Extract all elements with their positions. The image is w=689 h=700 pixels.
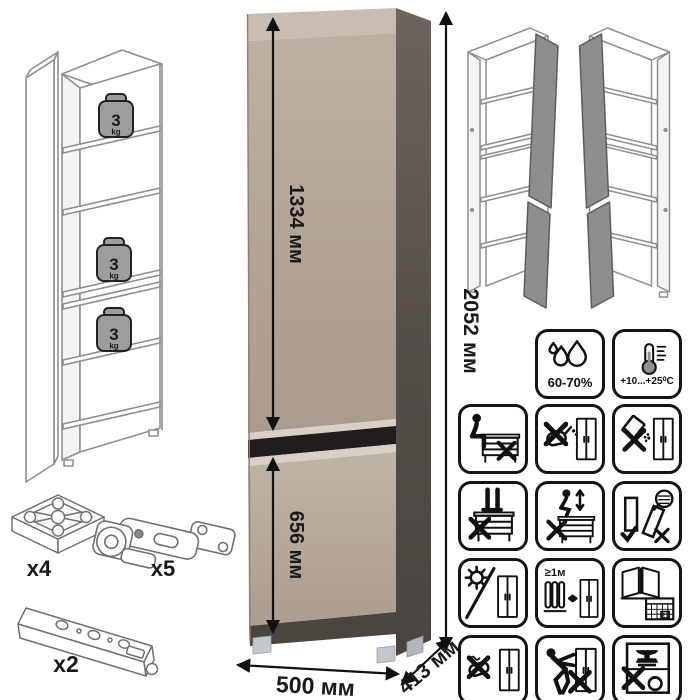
no-sitting-tile bbox=[458, 404, 528, 474]
hinge-qty-label: x5 bbox=[151, 556, 175, 581]
hinge-dot bbox=[471, 129, 474, 132]
svg-text:kg: kg bbox=[109, 272, 118, 281]
foot-mark bbox=[64, 460, 73, 466]
cabinet-upper-door bbox=[248, 33, 396, 433]
no-liquids-tile bbox=[535, 404, 605, 474]
wireframe-door-cabinet-right bbox=[580, 28, 670, 308]
weight-badge: 3 kg bbox=[99, 94, 133, 137]
no-standing-tile bbox=[458, 481, 528, 551]
cabinet-foot bbox=[377, 646, 395, 663]
no-heavy-objects-icon bbox=[618, 641, 676, 699]
keep-distance-from-heater-tile: ≥1м bbox=[535, 558, 605, 628]
ventilate-room-icon: 21 bbox=[618, 564, 676, 622]
temperature-label: +10...+25⁰C bbox=[620, 377, 674, 387]
cabinet-side-panel bbox=[396, 8, 431, 656]
no-dragging-icon bbox=[541, 641, 599, 699]
svg-text:kg: kg bbox=[111, 128, 120, 137]
weight-badge: 3 kg bbox=[97, 238, 131, 281]
no-standing-icon bbox=[464, 487, 522, 545]
no-liquids-icon bbox=[541, 410, 599, 468]
humidity-tile: 60-70% bbox=[535, 329, 605, 399]
dim-label-total: 2052 мм bbox=[459, 288, 483, 374]
humidity-drops-icon bbox=[542, 339, 598, 375]
plinth-peg bbox=[147, 664, 158, 675]
no-abrasive-powder-icon bbox=[618, 410, 676, 468]
no-heavy-objects-tile bbox=[612, 635, 682, 700]
dim-label-width: 500 мм bbox=[275, 671, 355, 700]
cabinet-3d-render bbox=[247, 8, 431, 663]
dim-label-upper: 1334 мм bbox=[285, 184, 307, 264]
thermometer-icon bbox=[619, 342, 675, 376]
foot-mark bbox=[149, 430, 158, 436]
dim-label-lower: 656 мм bbox=[285, 511, 307, 580]
carcass-left-side bbox=[62, 74, 80, 460]
cabinet-foot bbox=[253, 636, 271, 654]
door-lower-panel bbox=[524, 202, 550, 308]
carcass-left-side bbox=[468, 52, 480, 292]
cabinet-lower-door bbox=[248, 452, 396, 626]
store-panels-upright-icon bbox=[618, 487, 676, 545]
no-direct-sunlight-tile bbox=[458, 558, 528, 628]
calendar-day-label: 21 bbox=[662, 612, 669, 619]
svg-text:kg: kg bbox=[109, 342, 118, 351]
foot-qty-label: x4 bbox=[27, 556, 52, 581]
weight-badge: 3 kg bbox=[97, 308, 131, 351]
no-jumping-tile bbox=[535, 481, 605, 551]
store-panels-upright-tile bbox=[612, 481, 682, 551]
hardware-foot bbox=[12, 495, 104, 553]
no-harsh-scrubbing-icon bbox=[464, 641, 522, 699]
ventilate-room-tile: 21 bbox=[612, 558, 682, 628]
keep-distance-from-heater-icon: ≥1м bbox=[541, 564, 599, 622]
open-door-panel bbox=[26, 60, 54, 482]
min-distance-label: ≥1м bbox=[545, 567, 566, 579]
hardware-plinth bbox=[18, 608, 158, 676]
wireframe-door-cabinet-left bbox=[468, 28, 558, 308]
humidity-label: 60-70% bbox=[548, 376, 593, 389]
product-infographic: { "dims": { "upper": "1334 мм", "total":… bbox=[0, 0, 689, 700]
temperature-tile: +10...+25⁰C bbox=[612, 329, 682, 399]
no-abrasive-powder-tile bbox=[612, 404, 682, 474]
no-dragging-tile bbox=[535, 635, 605, 700]
no-direct-sunlight-icon bbox=[464, 564, 522, 622]
no-harsh-scrubbing-tile bbox=[458, 635, 528, 700]
plinth-qty-label: x2 bbox=[53, 651, 79, 677]
no-sitting-icon bbox=[464, 410, 522, 468]
no-jumping-icon bbox=[541, 487, 599, 545]
hinge-dot bbox=[471, 209, 474, 212]
wireframe-open-cabinet bbox=[26, 50, 162, 482]
